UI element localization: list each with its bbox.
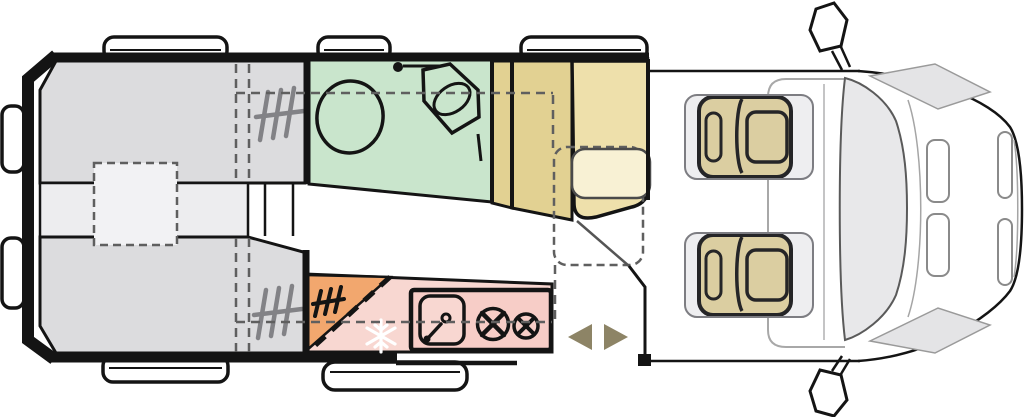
floorplan-canvas (0, 0, 1024, 417)
wardrobe-cabinet (512, 61, 572, 220)
dinette-area (492, 61, 650, 265)
cab-seat (685, 233, 813, 317)
mirror-icon (810, 356, 850, 416)
rear-bumper-tab (2, 238, 24, 308)
bathroom-floor (309, 59, 492, 202)
arrow-left-icon (568, 324, 592, 350)
kitchen (305, 274, 552, 352)
door-arrow-icon (568, 324, 628, 350)
wardrobe (492, 61, 512, 208)
floorplan-svg (0, 0, 1024, 417)
rear-bumper-tab (2, 106, 24, 172)
bed-infill-cushion (94, 163, 177, 245)
grille-slots (927, 132, 1012, 285)
arrow-right-icon (604, 324, 628, 350)
mirror-icon (810, 3, 850, 70)
bathroom (309, 59, 492, 202)
table (572, 149, 650, 198)
shower-head-icon (393, 62, 403, 72)
entry-step-bump (323, 362, 467, 390)
windshield (840, 78, 907, 340)
cab-seat (685, 95, 813, 179)
cab-area (649, 3, 1022, 416)
